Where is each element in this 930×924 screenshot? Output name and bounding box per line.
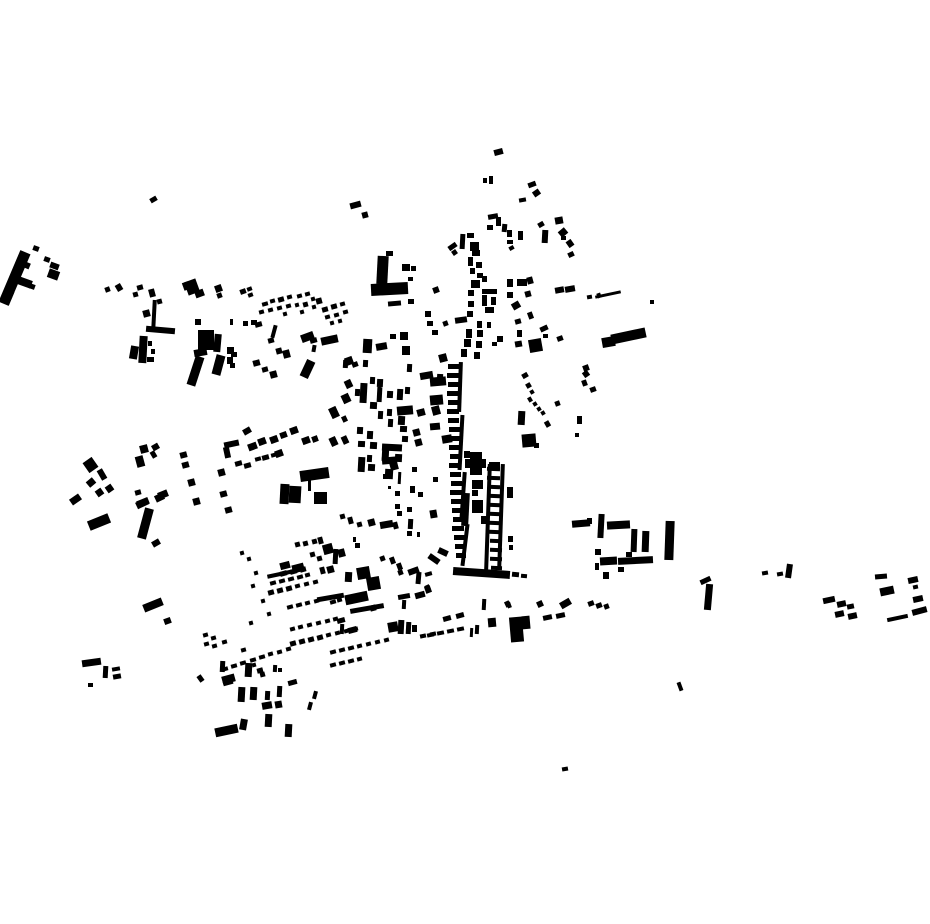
building-footprint xyxy=(447,391,459,396)
building-footprint xyxy=(461,349,467,357)
building-footprint xyxy=(595,549,601,555)
building-footprint xyxy=(521,574,527,579)
building-footprint xyxy=(243,321,248,326)
building-footprint xyxy=(464,339,471,347)
building-footprint xyxy=(491,297,496,305)
building-footprint xyxy=(387,391,393,398)
building-footprint xyxy=(472,500,483,513)
building-footprint xyxy=(385,469,394,479)
building-footprint xyxy=(402,346,410,355)
building-footprint xyxy=(451,481,462,486)
building-footprint xyxy=(577,416,582,424)
building-footprint xyxy=(412,625,417,632)
building-footprint xyxy=(358,457,366,472)
building-footprint xyxy=(407,531,412,536)
building-footprint xyxy=(343,360,348,368)
building-footprint xyxy=(432,330,438,335)
building-footprint xyxy=(483,178,487,183)
building-footprint xyxy=(475,625,479,634)
building-footprint xyxy=(509,545,513,550)
building-footprint xyxy=(138,336,147,363)
building-footprint xyxy=(496,217,501,226)
building-footprint xyxy=(397,511,402,516)
building-footprint xyxy=(460,234,466,249)
building-footprint xyxy=(427,321,433,326)
building-footprint xyxy=(340,624,345,634)
building-footprint xyxy=(534,443,539,448)
building-footprint xyxy=(345,572,353,582)
building-footprint xyxy=(408,277,413,281)
building-footprint xyxy=(231,352,237,357)
building-footprint xyxy=(518,411,526,425)
building-footprint xyxy=(437,374,443,382)
building-footprint xyxy=(618,567,624,572)
building-footprint xyxy=(355,543,360,548)
building-footprint xyxy=(587,295,593,300)
building-footprint xyxy=(471,280,480,288)
building-footprint xyxy=(238,687,246,702)
building-footprint xyxy=(507,487,513,498)
building-footprint xyxy=(477,321,482,328)
building-footprint xyxy=(482,289,497,294)
building-footprint xyxy=(470,628,473,637)
building-footprint xyxy=(472,490,478,496)
building-footprint xyxy=(464,451,470,458)
building-footprint xyxy=(151,349,155,354)
figure-page xyxy=(0,0,930,924)
building-footprint xyxy=(400,426,407,432)
building-footprint xyxy=(450,472,461,477)
building-footprint xyxy=(88,683,93,687)
building-footprint xyxy=(397,389,404,400)
building-footprint xyxy=(631,529,638,552)
building-footprint xyxy=(487,476,500,480)
building-footprint xyxy=(449,463,461,468)
building-footprint xyxy=(363,339,373,353)
building-footprint xyxy=(447,373,459,378)
building-footprint xyxy=(410,486,415,493)
building-footprint xyxy=(875,573,887,579)
building-footprint xyxy=(398,472,402,484)
building-footprint xyxy=(402,436,408,442)
building-footprint xyxy=(265,714,273,727)
building-footprint xyxy=(600,557,617,566)
building-footprint xyxy=(543,334,548,338)
building-footprint xyxy=(433,477,438,482)
building-footprint xyxy=(487,322,491,328)
building-footprint xyxy=(502,224,508,232)
building-footprint xyxy=(595,563,599,570)
building-footprint xyxy=(195,319,201,325)
building-footprint xyxy=(575,433,579,437)
building-footprint xyxy=(447,409,459,414)
building-footprint xyxy=(489,521,501,525)
building-footprint xyxy=(395,491,400,496)
building-footprint xyxy=(430,423,441,431)
building-footprint xyxy=(407,364,412,372)
building-footprint xyxy=(455,544,466,549)
building-footprint xyxy=(370,442,377,449)
building-footprint xyxy=(488,503,500,507)
building-footprint xyxy=(377,387,383,402)
building-footprint xyxy=(279,484,289,504)
building-footprint xyxy=(405,387,410,394)
building-footprint xyxy=(408,299,414,304)
building-footprint xyxy=(429,509,437,518)
building-footprint xyxy=(387,621,399,633)
building-footprint xyxy=(452,508,463,513)
building-footprint xyxy=(452,526,464,531)
building-footprint xyxy=(230,319,233,325)
building-footprint xyxy=(398,620,405,634)
building-footprint xyxy=(587,518,592,524)
building-footprint xyxy=(417,532,420,537)
building-footprint xyxy=(528,338,543,353)
building-footprint xyxy=(274,700,282,708)
building-footprint xyxy=(390,334,396,339)
building-footprint xyxy=(448,382,459,387)
building-footprint xyxy=(358,441,365,447)
building-footprint xyxy=(400,332,408,340)
building-footprint xyxy=(487,225,493,230)
building-footprint xyxy=(507,240,513,244)
building-footprint xyxy=(147,357,154,362)
building-footprint xyxy=(456,553,466,558)
building-footprint xyxy=(357,427,363,434)
building-footprint xyxy=(220,661,226,672)
building-footprint xyxy=(430,394,444,405)
building-footprint xyxy=(397,405,414,415)
building-footprint xyxy=(554,216,563,224)
building-footprint xyxy=(603,572,609,579)
building-footprint xyxy=(314,492,327,504)
building-footprint xyxy=(448,364,459,369)
building-footprint xyxy=(508,536,513,542)
building-footprint xyxy=(485,307,494,313)
building-footprint xyxy=(359,383,367,403)
building-footprint xyxy=(497,336,503,342)
building-footprint xyxy=(388,486,391,489)
building-footprint xyxy=(148,341,152,346)
building-footprint xyxy=(377,379,383,387)
building-footprint xyxy=(198,330,214,350)
building-footprint xyxy=(366,576,381,591)
building-footprint xyxy=(488,494,500,498)
building-footprint xyxy=(468,290,474,296)
building-footprint xyxy=(509,616,524,642)
building-footprint xyxy=(470,268,475,274)
building-footprint xyxy=(370,377,375,384)
building-footprint xyxy=(412,467,417,472)
building-footprint xyxy=(472,250,480,256)
building-footprint xyxy=(489,530,501,534)
building-footprint xyxy=(265,691,270,700)
building-footprint xyxy=(521,616,530,630)
map-container xyxy=(0,0,930,924)
building-footprint xyxy=(507,279,513,287)
building-footprint xyxy=(650,300,654,304)
building-footprint xyxy=(227,357,233,364)
building-footprint xyxy=(449,427,460,432)
building-footprint xyxy=(363,360,368,367)
building-footprint xyxy=(378,411,383,419)
building-footprint xyxy=(448,400,459,405)
building-footprint xyxy=(507,292,513,298)
building-footprint xyxy=(642,531,650,552)
building-footprint xyxy=(449,445,460,450)
building-footprint xyxy=(487,467,500,471)
building-footprint xyxy=(418,492,423,497)
building-footprint xyxy=(278,668,282,672)
building-footprint xyxy=(490,548,502,552)
building-footprint xyxy=(355,389,360,396)
building-footprint xyxy=(376,256,388,285)
building-footprint xyxy=(491,566,502,570)
building-footprint xyxy=(626,552,632,557)
building-footprint xyxy=(607,520,630,529)
building-footprint xyxy=(488,618,497,628)
building-footprint xyxy=(489,176,493,184)
building-footprint xyxy=(466,329,472,338)
building-footprint xyxy=(517,279,527,286)
building-footprint xyxy=(370,402,377,409)
building-footprint xyxy=(481,516,486,524)
building-footprint xyxy=(454,535,465,540)
building-footprint xyxy=(386,251,393,256)
building-footprint xyxy=(308,480,311,491)
building-footprint xyxy=(450,454,461,459)
building-footprint xyxy=(289,486,302,504)
building-footprint xyxy=(482,295,487,306)
building-footprint xyxy=(398,416,405,425)
building-footprint xyxy=(597,514,604,538)
building-footprint xyxy=(245,663,253,677)
building-footprint xyxy=(515,340,523,347)
building-footprint xyxy=(468,301,474,307)
building-footprint xyxy=(477,330,483,337)
building-footprint xyxy=(472,480,483,489)
building-footprint xyxy=(367,455,372,462)
building-footprint xyxy=(388,419,393,427)
building-footprint xyxy=(482,599,487,610)
building-footprint xyxy=(415,572,421,584)
building-footprint xyxy=(490,539,502,543)
building-footprint xyxy=(250,687,258,700)
building-footprint xyxy=(408,519,414,529)
building-footprint xyxy=(371,282,409,296)
building-footprint xyxy=(230,363,235,368)
building-footprint xyxy=(387,409,392,416)
building-footprint xyxy=(542,230,549,243)
building-footprint xyxy=(474,352,480,359)
building-footprint xyxy=(489,512,501,516)
building-footprint xyxy=(273,665,277,672)
building-footprint xyxy=(468,257,473,266)
building-footprint xyxy=(476,262,482,268)
building-footprint xyxy=(402,264,410,271)
building-footprint xyxy=(664,521,674,560)
building-footprint xyxy=(518,231,523,240)
building-footprint xyxy=(492,342,497,346)
building-footprint xyxy=(490,557,502,561)
building-footprint xyxy=(482,276,487,282)
building-footprint xyxy=(512,572,519,578)
building-footprint xyxy=(470,242,479,251)
building-footprint xyxy=(441,434,452,444)
building-footprint xyxy=(467,311,473,317)
building-footprint xyxy=(353,537,356,542)
building-footprint xyxy=(411,266,416,271)
building-footprint xyxy=(425,311,431,317)
building-footprint xyxy=(407,507,412,512)
footprint-map xyxy=(0,0,930,924)
building-footprint xyxy=(367,431,373,439)
building-footprint xyxy=(406,622,412,634)
building-footprint xyxy=(467,233,474,238)
building-footprint xyxy=(488,485,500,489)
building-footprint xyxy=(103,666,109,678)
building-footprint xyxy=(368,464,375,471)
building-footprint xyxy=(507,230,512,237)
building-footprint xyxy=(395,504,400,509)
building-footprint xyxy=(451,499,462,504)
building-footprint xyxy=(561,236,566,240)
building-footprint xyxy=(465,459,486,468)
building-footprint xyxy=(448,418,459,423)
building-footprint xyxy=(517,330,522,337)
building-footprint xyxy=(277,686,283,697)
building-footprint xyxy=(402,600,406,609)
building-footprint xyxy=(285,724,293,737)
building-footprint xyxy=(450,490,462,495)
building-footprint xyxy=(476,341,482,348)
